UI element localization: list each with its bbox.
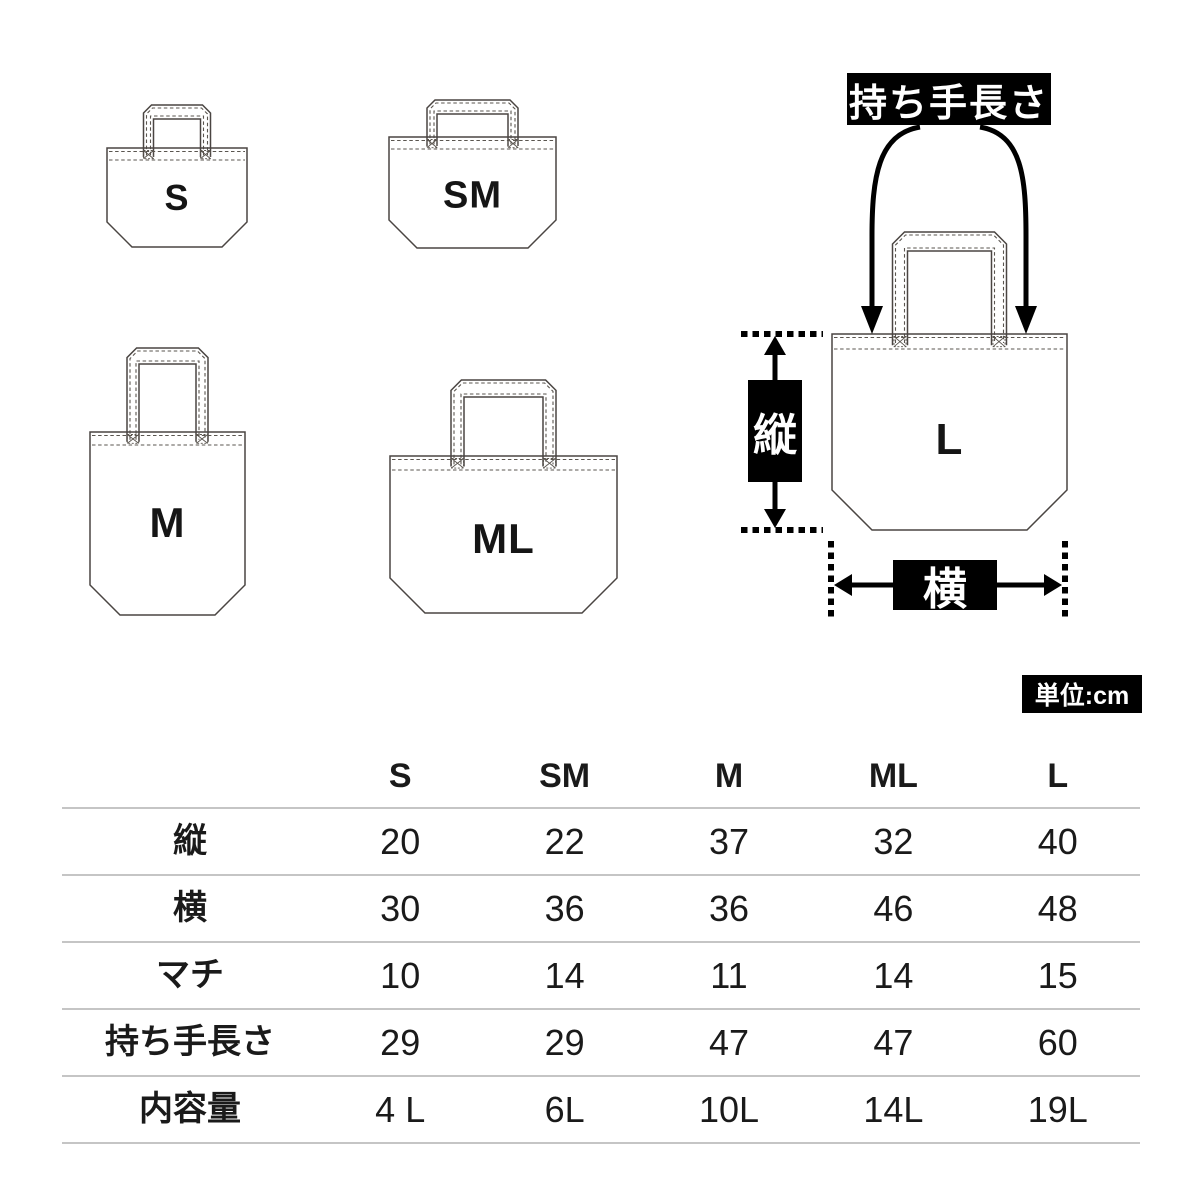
size-value-cell: 36 — [647, 876, 811, 941]
size-value-cell: 10L — [647, 1077, 811, 1142]
tote-bag-size-chart: 持ち手長さ 縦 横 単位:cm SSMMMLL縦2022373240横30363… — [0, 0, 1200, 1200]
size-value-cell: 48 — [976, 876, 1140, 941]
size-column-header-l: L — [976, 745, 1140, 807]
size-row-label: 持ち手長さ — [62, 1010, 318, 1075]
size-value-cell: 37 — [647, 809, 811, 874]
bag-label-l: L — [936, 415, 964, 465]
size-value-cell: 14L — [811, 1077, 975, 1142]
height-label: 縦 — [748, 380, 802, 482]
bag-label-ml: ML — [472, 515, 535, 563]
size-value-cell: 10 — [318, 943, 482, 1008]
size-value-cell: 29 — [318, 1010, 482, 1075]
size-value-cell: 36 — [482, 876, 646, 941]
size-value-cell: 4 L — [318, 1077, 482, 1142]
size-value-cell: 47 — [811, 1010, 975, 1075]
size-value-cell: 15 — [976, 943, 1140, 1008]
width-arrowhead-right — [1044, 574, 1062, 596]
size-table-row: 内容量4 L6L10L14L19L — [62, 1077, 1140, 1144]
size-value-cell: 19L — [976, 1077, 1140, 1142]
bag-s-drawing — [107, 105, 247, 247]
bag-l-drawing — [832, 232, 1067, 530]
size-value-cell: 60 — [976, 1010, 1140, 1075]
bag-illustrations — [90, 100, 1067, 615]
size-table-header-row: SSMMMLL — [62, 745, 1140, 809]
width-label: 横 — [893, 560, 997, 610]
handle-length-label: 持ち手長さ — [847, 73, 1051, 125]
bag-label-m: M — [150, 499, 186, 547]
size-value-cell: 47 — [647, 1010, 811, 1075]
size-row-label: 内容量 — [62, 1077, 318, 1142]
size-value-cell: 11 — [647, 943, 811, 1008]
bag-label-sm: SM — [443, 175, 502, 218]
size-table-row: マチ1014111415 — [62, 943, 1140, 1010]
size-value-cell: 30 — [318, 876, 482, 941]
size-value-cell: 14 — [811, 943, 975, 1008]
size-table-row: 持ち手長さ2929474760 — [62, 1010, 1140, 1077]
height-arrowhead-up — [764, 336, 786, 355]
size-column-header-s: S — [318, 745, 482, 807]
handle-length-arrows — [861, 127, 1037, 334]
size-row-label: 横 — [62, 876, 318, 941]
size-column-header-m: M — [647, 745, 811, 807]
size-value-cell: 46 — [811, 876, 975, 941]
width-arrowhead-left — [834, 574, 852, 596]
size-table-row: 横3036364648 — [62, 876, 1140, 943]
size-value-cell: 32 — [811, 809, 975, 874]
height-arrowhead-down — [764, 509, 786, 528]
size-value-cell: 40 — [976, 809, 1140, 874]
bag-label-s: S — [164, 177, 189, 219]
size-value-cell: 29 — [482, 1010, 646, 1075]
handle-length-arrowhead-left — [861, 306, 883, 334]
size-table-row: 縦2022373240 — [62, 809, 1140, 876]
size-value-cell: 20 — [318, 809, 482, 874]
bag-m-drawing — [90, 348, 245, 615]
size-table: SSMMMLL縦2022373240横3036364648マチ101411141… — [62, 745, 1140, 1144]
unit-badge: 単位:cm — [1022, 675, 1142, 713]
size-row-label: マチ — [62, 943, 318, 1008]
size-column-header-sm: SM — [482, 745, 646, 807]
handle-length-arrowhead-right — [1015, 306, 1037, 334]
size-column-header-ml: ML — [811, 745, 975, 807]
size-table-corner-cell — [62, 745, 318, 807]
size-value-cell: 14 — [482, 943, 646, 1008]
size-value-cell: 6L — [482, 1077, 646, 1142]
bag-ml-drawing — [390, 380, 617, 613]
size-value-cell: 22 — [482, 809, 646, 874]
size-row-label: 縦 — [62, 809, 318, 874]
